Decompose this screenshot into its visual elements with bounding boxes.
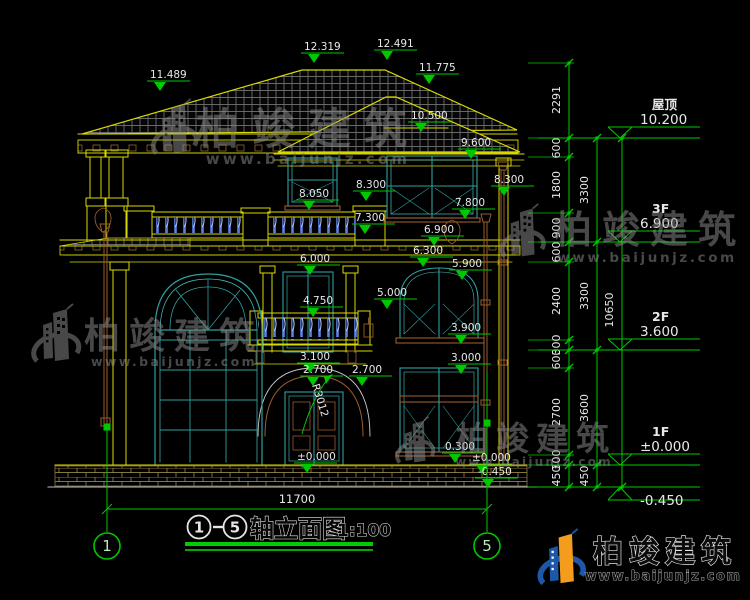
svg-text:2F: 2F bbox=[652, 309, 669, 324]
elevation-marker: 8.050 bbox=[296, 188, 339, 210]
watermark-brand: 柏竣建筑 bbox=[196, 105, 420, 155]
axis-number-end: 5 bbox=[482, 537, 492, 555]
elevation-marker: 5.900 bbox=[449, 258, 492, 280]
svg-text:3.900: 3.900 bbox=[451, 322, 481, 334]
watermark-center: 柏竣建筑 www.baijunjz.com bbox=[397, 417, 616, 469]
svg-text:10650: 10650 bbox=[603, 293, 616, 328]
elevation-marker: 7.300 bbox=[352, 212, 395, 234]
title-axis-start: 1 bbox=[194, 519, 204, 537]
watermark-site: www.baijunjz.com bbox=[91, 354, 257, 369]
title-scale: 1:100 bbox=[337, 521, 391, 541]
svg-text:5.000: 5.000 bbox=[377, 287, 407, 299]
svg-text:11.775: 11.775 bbox=[419, 62, 456, 74]
svg-text:4.750: 4.750 bbox=[303, 295, 333, 307]
cad-canvas: 2291600180090060024003006002700300450330… bbox=[0, 0, 750, 600]
elevation-marker: 8.300 bbox=[491, 174, 534, 196]
elevation-marker: 12.319 bbox=[301, 41, 344, 63]
brand-logo: 柏竣建筑 www.baijunjz.com bbox=[540, 529, 741, 584]
svg-text:8.300: 8.300 bbox=[494, 174, 524, 186]
brand-logo-icon bbox=[540, 529, 583, 583]
svg-text:12.491: 12.491 bbox=[377, 38, 414, 50]
elevation-marker: 12.491 bbox=[374, 38, 417, 60]
svg-text:8.300: 8.300 bbox=[356, 179, 386, 191]
porch-columns bbox=[86, 150, 128, 244]
svg-text:±0.000: ±0.000 bbox=[297, 451, 336, 463]
svg-text:2.700: 2.700 bbox=[303, 364, 333, 376]
svg-text:2400: 2400 bbox=[550, 287, 563, 315]
elevation-marker: 4.750 bbox=[300, 295, 343, 317]
svg-text:3.600: 3.600 bbox=[640, 324, 679, 340]
bottom-dimension: 11700 bbox=[102, 492, 492, 514]
svg-text:600: 600 bbox=[550, 349, 563, 370]
svg-text:3300: 3300 bbox=[578, 176, 591, 204]
watermark-left: 柏竣建筑 www.baijunjz.com bbox=[34, 304, 264, 369]
svg-text:3.000: 3.000 bbox=[451, 352, 481, 364]
elevation-marker: 6.900 bbox=[421, 224, 464, 246]
svg-text:3.100: 3.100 bbox=[300, 351, 330, 363]
svg-text:-0.450: -0.450 bbox=[640, 493, 684, 509]
bottom-dimension-value: 11700 bbox=[279, 492, 316, 506]
title-axis-end: 5 bbox=[230, 519, 240, 537]
svg-text:2291: 2291 bbox=[550, 86, 563, 114]
svg-text:3300: 3300 bbox=[578, 282, 591, 310]
svg-text:7.300: 7.300 bbox=[355, 212, 385, 224]
svg-text:5.900: 5.900 bbox=[452, 258, 482, 270]
downspouts bbox=[100, 162, 508, 460]
elevation-marker: 8.300 bbox=[353, 179, 396, 201]
watermark-site: www.baijunjz.com bbox=[206, 150, 410, 168]
watermark-brand: 柏竣建筑 bbox=[84, 316, 264, 357]
elevation-marker: 3.000 bbox=[448, 352, 491, 374]
elevation-marker: 7.800 bbox=[452, 197, 495, 219]
svg-text:1F: 1F bbox=[652, 424, 669, 439]
drawing-title: 1 5 轴立面图 1:100 bbox=[185, 515, 391, 551]
elevation-marker: 5.000 bbox=[374, 287, 417, 309]
watermark-brand: 柏竣建筑 bbox=[456, 419, 616, 458]
watermark-brand: 柏竣建筑 bbox=[554, 208, 746, 252]
cad-viewport: 2291600180090060024003006002700300450330… bbox=[0, 0, 750, 600]
svg-text:11.489: 11.489 bbox=[150, 69, 187, 81]
svg-text:6.300: 6.300 bbox=[413, 245, 443, 257]
svg-text:9.600: 9.600 bbox=[461, 137, 491, 149]
watermark-logo-icon bbox=[34, 304, 79, 361]
svg-text:7.800: 7.800 bbox=[455, 197, 485, 209]
brand-logo-text: 柏竣建筑 bbox=[593, 535, 737, 570]
radius-label: R3012 bbox=[309, 382, 330, 418]
svg-text:8.050: 8.050 bbox=[299, 188, 329, 200]
watermark-site: www.baijunjz.com bbox=[557, 250, 737, 266]
title-underline-thin bbox=[185, 549, 373, 551]
brand-logo-site: www.baijunjz.com bbox=[585, 569, 742, 584]
svg-text:10.200: 10.200 bbox=[640, 112, 687, 128]
window-left-arched bbox=[155, 274, 262, 465]
title-text: 轴立面图 bbox=[250, 515, 346, 543]
axis-number-start: 1 bbox=[102, 537, 112, 555]
svg-text:1800: 1800 bbox=[550, 171, 563, 199]
svg-text:600: 600 bbox=[550, 138, 563, 159]
svg-text:±0.000: ±0.000 bbox=[640, 439, 690, 455]
elevation-marker: 11.489 bbox=[147, 69, 190, 91]
svg-text:6.900: 6.900 bbox=[424, 224, 454, 236]
floor-slab-3f bbox=[60, 238, 520, 262]
svg-text:12.319: 12.319 bbox=[304, 41, 341, 53]
svg-text:2.700: 2.700 bbox=[352, 364, 382, 376]
radius-annotation: R3012 bbox=[302, 374, 333, 434]
elevation-marker: 2.700 bbox=[349, 364, 392, 386]
svg-text:6.000: 6.000 bbox=[300, 253, 330, 265]
svg-text:3600: 3600 bbox=[578, 394, 591, 422]
elevation-marker: 11.775 bbox=[416, 62, 459, 84]
watermark-site: www.baijunjz.com bbox=[455, 455, 613, 469]
title-underline-thick bbox=[185, 542, 373, 546]
svg-text:屋顶: 屋顶 bbox=[652, 97, 678, 112]
